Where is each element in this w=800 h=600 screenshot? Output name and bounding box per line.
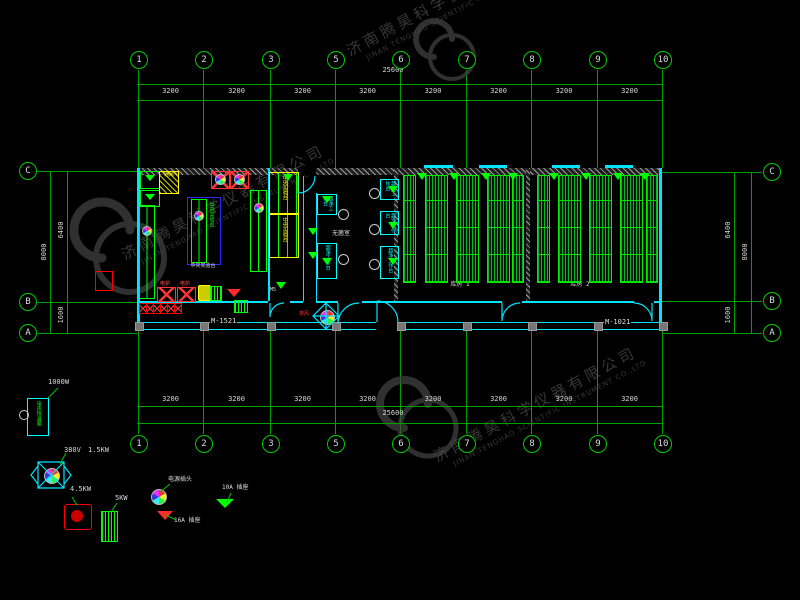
bench-caption: 中央实验台 [181, 263, 225, 269]
grid-bubble-right-a: A [763, 324, 781, 342]
bay-dimension: 3200 [549, 87, 579, 95]
window [552, 165, 580, 168]
grid-bubble-right-b: B [763, 292, 781, 310]
interior-wall [303, 176, 304, 301]
equipment-box [210, 286, 222, 301]
side-dimension: 1600 [57, 300, 65, 330]
bay-dimension: 3200 [222, 87, 252, 95]
grid-bubble-top: 7 [458, 51, 476, 69]
storage-rack [425, 175, 448, 283]
stool [338, 209, 349, 220]
total-dimension: 25600 [373, 409, 413, 417]
door-mark: M-1021 [604, 319, 631, 325]
grid-bubble-top: 9 [589, 51, 607, 69]
grid-bubble-top: 3 [262, 51, 280, 69]
interior-wall [526, 168, 530, 301]
lamp-icon [640, 173, 650, 180]
legend-incubator: 电热恒温箱 [27, 398, 49, 436]
fume-hood-label: 通风 [160, 172, 178, 178]
wall-post [659, 322, 668, 331]
legend-socket-green: 10A 插座 [222, 485, 248, 491]
central-bench: 中央实验台 [269, 214, 299, 258]
legend-voltage: 380V [64, 446, 81, 454]
socket-16a-icon [157, 511, 173, 520]
lamp-icon [388, 258, 398, 265]
stove [177, 287, 196, 302]
power-socket-icon [254, 203, 264, 213]
lamp-icon [417, 173, 427, 180]
central-bench [191, 199, 207, 263]
lamp-icon [613, 173, 623, 180]
legend-incubator-name: 电热恒温箱 [35, 401, 41, 433]
storage-rack [456, 175, 479, 283]
grid-bubble-bottom: 10 [654, 435, 672, 453]
legend-power: 5KW [115, 494, 128, 502]
legend-stove [64, 504, 92, 530]
dim-line [50, 171, 51, 333]
knob-icon [19, 410, 29, 420]
wall-post [332, 322, 341, 331]
legend-socket [151, 489, 167, 505]
grid-bubble-top: 5 [327, 51, 345, 69]
stool [369, 224, 380, 235]
bay-dimension: 3200 [484, 395, 514, 403]
legend-power: 1.5KW [88, 446, 109, 454]
legend-socket-red: 16A 插座 [174, 518, 200, 524]
wall-post [135, 322, 144, 331]
drawing-content: 25600 25600 C B A 8000 6400 1600 C B A 6… [0, 0, 800, 600]
fan-label: 排风 [294, 311, 314, 317]
bench-label: 中央实验台 [281, 217, 287, 255]
lamp-icon [283, 174, 293, 181]
legend-fan [44, 468, 60, 484]
interior-wall [522, 301, 634, 303]
side-dimension: 1600 [724, 300, 732, 330]
lamp-icon [449, 173, 459, 180]
grid-bubble-bottom: 6 [392, 435, 410, 453]
fume-hood: 通风 [159, 171, 179, 194]
exterior-wall-right [659, 168, 662, 330]
side-dimension: 6400 [724, 215, 732, 245]
bay-dimension: 3200 [615, 395, 645, 403]
stove-burner-icon [71, 510, 83, 522]
legend-power: 4.5KW [70, 485, 91, 493]
lamp-icon [388, 186, 398, 193]
equipment-icon [145, 194, 155, 200]
bay-dimension: 3200 [418, 395, 448, 403]
wall-post [397, 322, 406, 331]
grid-row-line [38, 302, 137, 303]
interior-wall [290, 301, 303, 303]
window [424, 165, 453, 168]
power-socket-icon [234, 174, 245, 185]
revision-box [95, 271, 113, 291]
cabinet-box [234, 300, 248, 313]
storage-rack [512, 175, 524, 283]
legend-rack [101, 511, 118, 542]
bay-dimension: 3200 [222, 395, 252, 403]
dim-line [751, 172, 752, 333]
grid-bubble-top: 8 [523, 51, 541, 69]
lamp-icon [481, 173, 491, 180]
bay-dimension: 3200 [156, 87, 186, 95]
stool [369, 259, 380, 270]
room-label: 无菌室 [326, 231, 356, 237]
bay-dimension: 3200 [418, 87, 448, 95]
grid-bubble-left-a: A [19, 324, 37, 342]
storage-rack [558, 175, 581, 283]
bench-label: 中央实验台 [208, 202, 214, 260]
lamp-icon [308, 252, 318, 259]
grid-row-line [662, 172, 762, 173]
grid-bubble-bottom: 2 [195, 435, 213, 453]
grid-row-line [662, 333, 762, 334]
side-dimension: 8000 [40, 237, 48, 267]
wall-post [594, 322, 603, 331]
bay-dimension: 3200 [288, 87, 318, 95]
grid-bubble-bottom: 1 [130, 435, 148, 453]
grid-row-line [662, 301, 762, 302]
lamp-icon [308, 228, 318, 235]
grid-bubble-top: 10 [654, 51, 672, 69]
dim-line [137, 406, 662, 407]
grid-bubble-top: 1 [130, 51, 148, 69]
side-dimension: 6400 [57, 215, 65, 245]
socket-16a-icon [227, 289, 241, 297]
wall-post [200, 322, 209, 331]
bay-dimension: 3200 [615, 87, 645, 95]
grid-bubble-bottom: 8 [523, 435, 541, 453]
window [605, 165, 633, 168]
bay-dimension: 3200 [353, 395, 383, 403]
stool [369, 188, 380, 199]
grid-bubble-bottom: 7 [458, 435, 476, 453]
storage-rack [403, 175, 416, 283]
stove [157, 287, 176, 302]
grid-bubble-bottom: 9 [589, 435, 607, 453]
power-socket-icon [215, 174, 226, 185]
interior-wall [654, 301, 662, 303]
storage-rack [589, 175, 612, 283]
grid-bubble-top: 6 [392, 51, 410, 69]
bay-dimension: 3200 [484, 87, 514, 95]
lamp-icon [276, 282, 286, 289]
power-socket-icon [142, 226, 152, 236]
bay-dimension: 3200 [288, 395, 318, 403]
grid-bubble-left-c: C [19, 162, 37, 180]
lamp-icon [388, 222, 398, 229]
storage-rack [620, 175, 643, 283]
grid-bubble-left-b: B [19, 293, 37, 311]
grid-bubble-bottom: 3 [262, 435, 280, 453]
wall-bench [139, 205, 155, 299]
cad-floor-plan: 济南腾昊科学仪器有限公司 JINAN TENGHAO SCIENTIFIC IN… [0, 0, 800, 600]
grid-bubble-bottom: 5 [327, 435, 345, 453]
side-dimension: 8000 [741, 237, 749, 267]
wall-post [463, 322, 472, 331]
grid-bubble-top: 2 [195, 51, 213, 69]
lamp-icon [322, 258, 332, 265]
grid-row-line [38, 333, 137, 334]
dim-line [734, 172, 735, 333]
interior-wall [362, 301, 502, 303]
storage-rack [646, 175, 658, 283]
storage-rack [487, 175, 510, 283]
cabinet-box [174, 303, 182, 314]
total-dimension: 25600 [373, 66, 413, 74]
bay-dimension: 3200 [156, 395, 186, 403]
legend-power: 1000W [48, 378, 69, 386]
bay-dimension: 3200 [353, 87, 383, 95]
stool [338, 254, 349, 265]
interior-wall [316, 301, 338, 303]
equipment-box [140, 171, 160, 189]
equipment-icon [145, 175, 155, 181]
dim-line [137, 84, 662, 85]
power-socket-icon [194, 211, 204, 221]
dim-line [137, 423, 662, 424]
grid-bubble-right-c: C [763, 163, 781, 181]
lamp-icon [322, 196, 332, 203]
socket-10a-icon [216, 499, 234, 508]
dim-line [67, 171, 68, 333]
legend-socket-name: 电源插头 [168, 477, 192, 483]
lamp-icon [508, 173, 518, 180]
dim-line [137, 100, 662, 101]
storage-rack [537, 175, 550, 283]
wall-post [267, 322, 276, 331]
window [479, 165, 507, 168]
door-mark: M-1521 [210, 318, 237, 324]
lamp-icon [581, 173, 591, 180]
lamp-icon [549, 173, 559, 180]
grid-row-line [38, 171, 137, 172]
wall-post [528, 322, 537, 331]
door-opening [298, 168, 316, 175]
bay-dimension: 3200 [549, 395, 579, 403]
